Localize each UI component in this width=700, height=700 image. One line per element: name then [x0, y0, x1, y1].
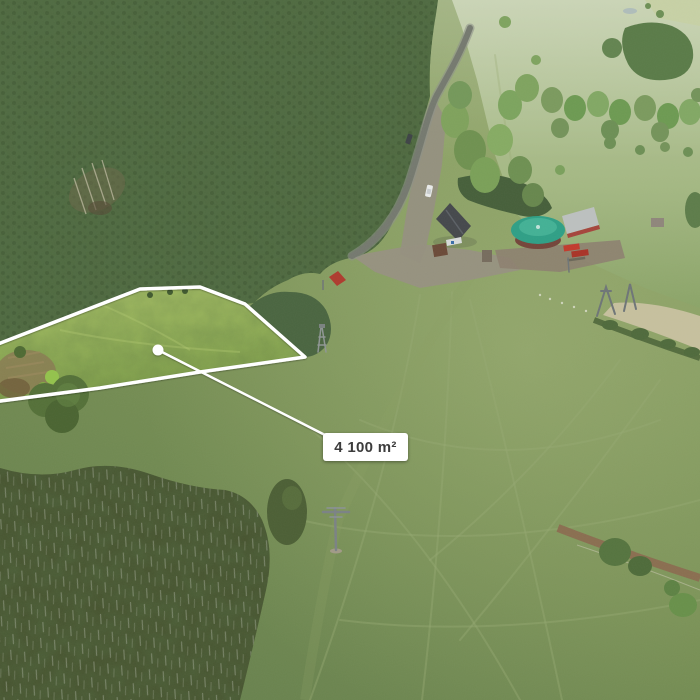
parcel-marker-dot — [153, 345, 164, 356]
area-label-text: 4 100 m² — [334, 439, 396, 456]
photo-canvas — [0, 0, 700, 700]
grain-overlay — [0, 0, 700, 700]
aerial-photo: 4 100 m² — [0, 0, 700, 700]
area-label: 4 100 m² — [323, 433, 408, 461]
